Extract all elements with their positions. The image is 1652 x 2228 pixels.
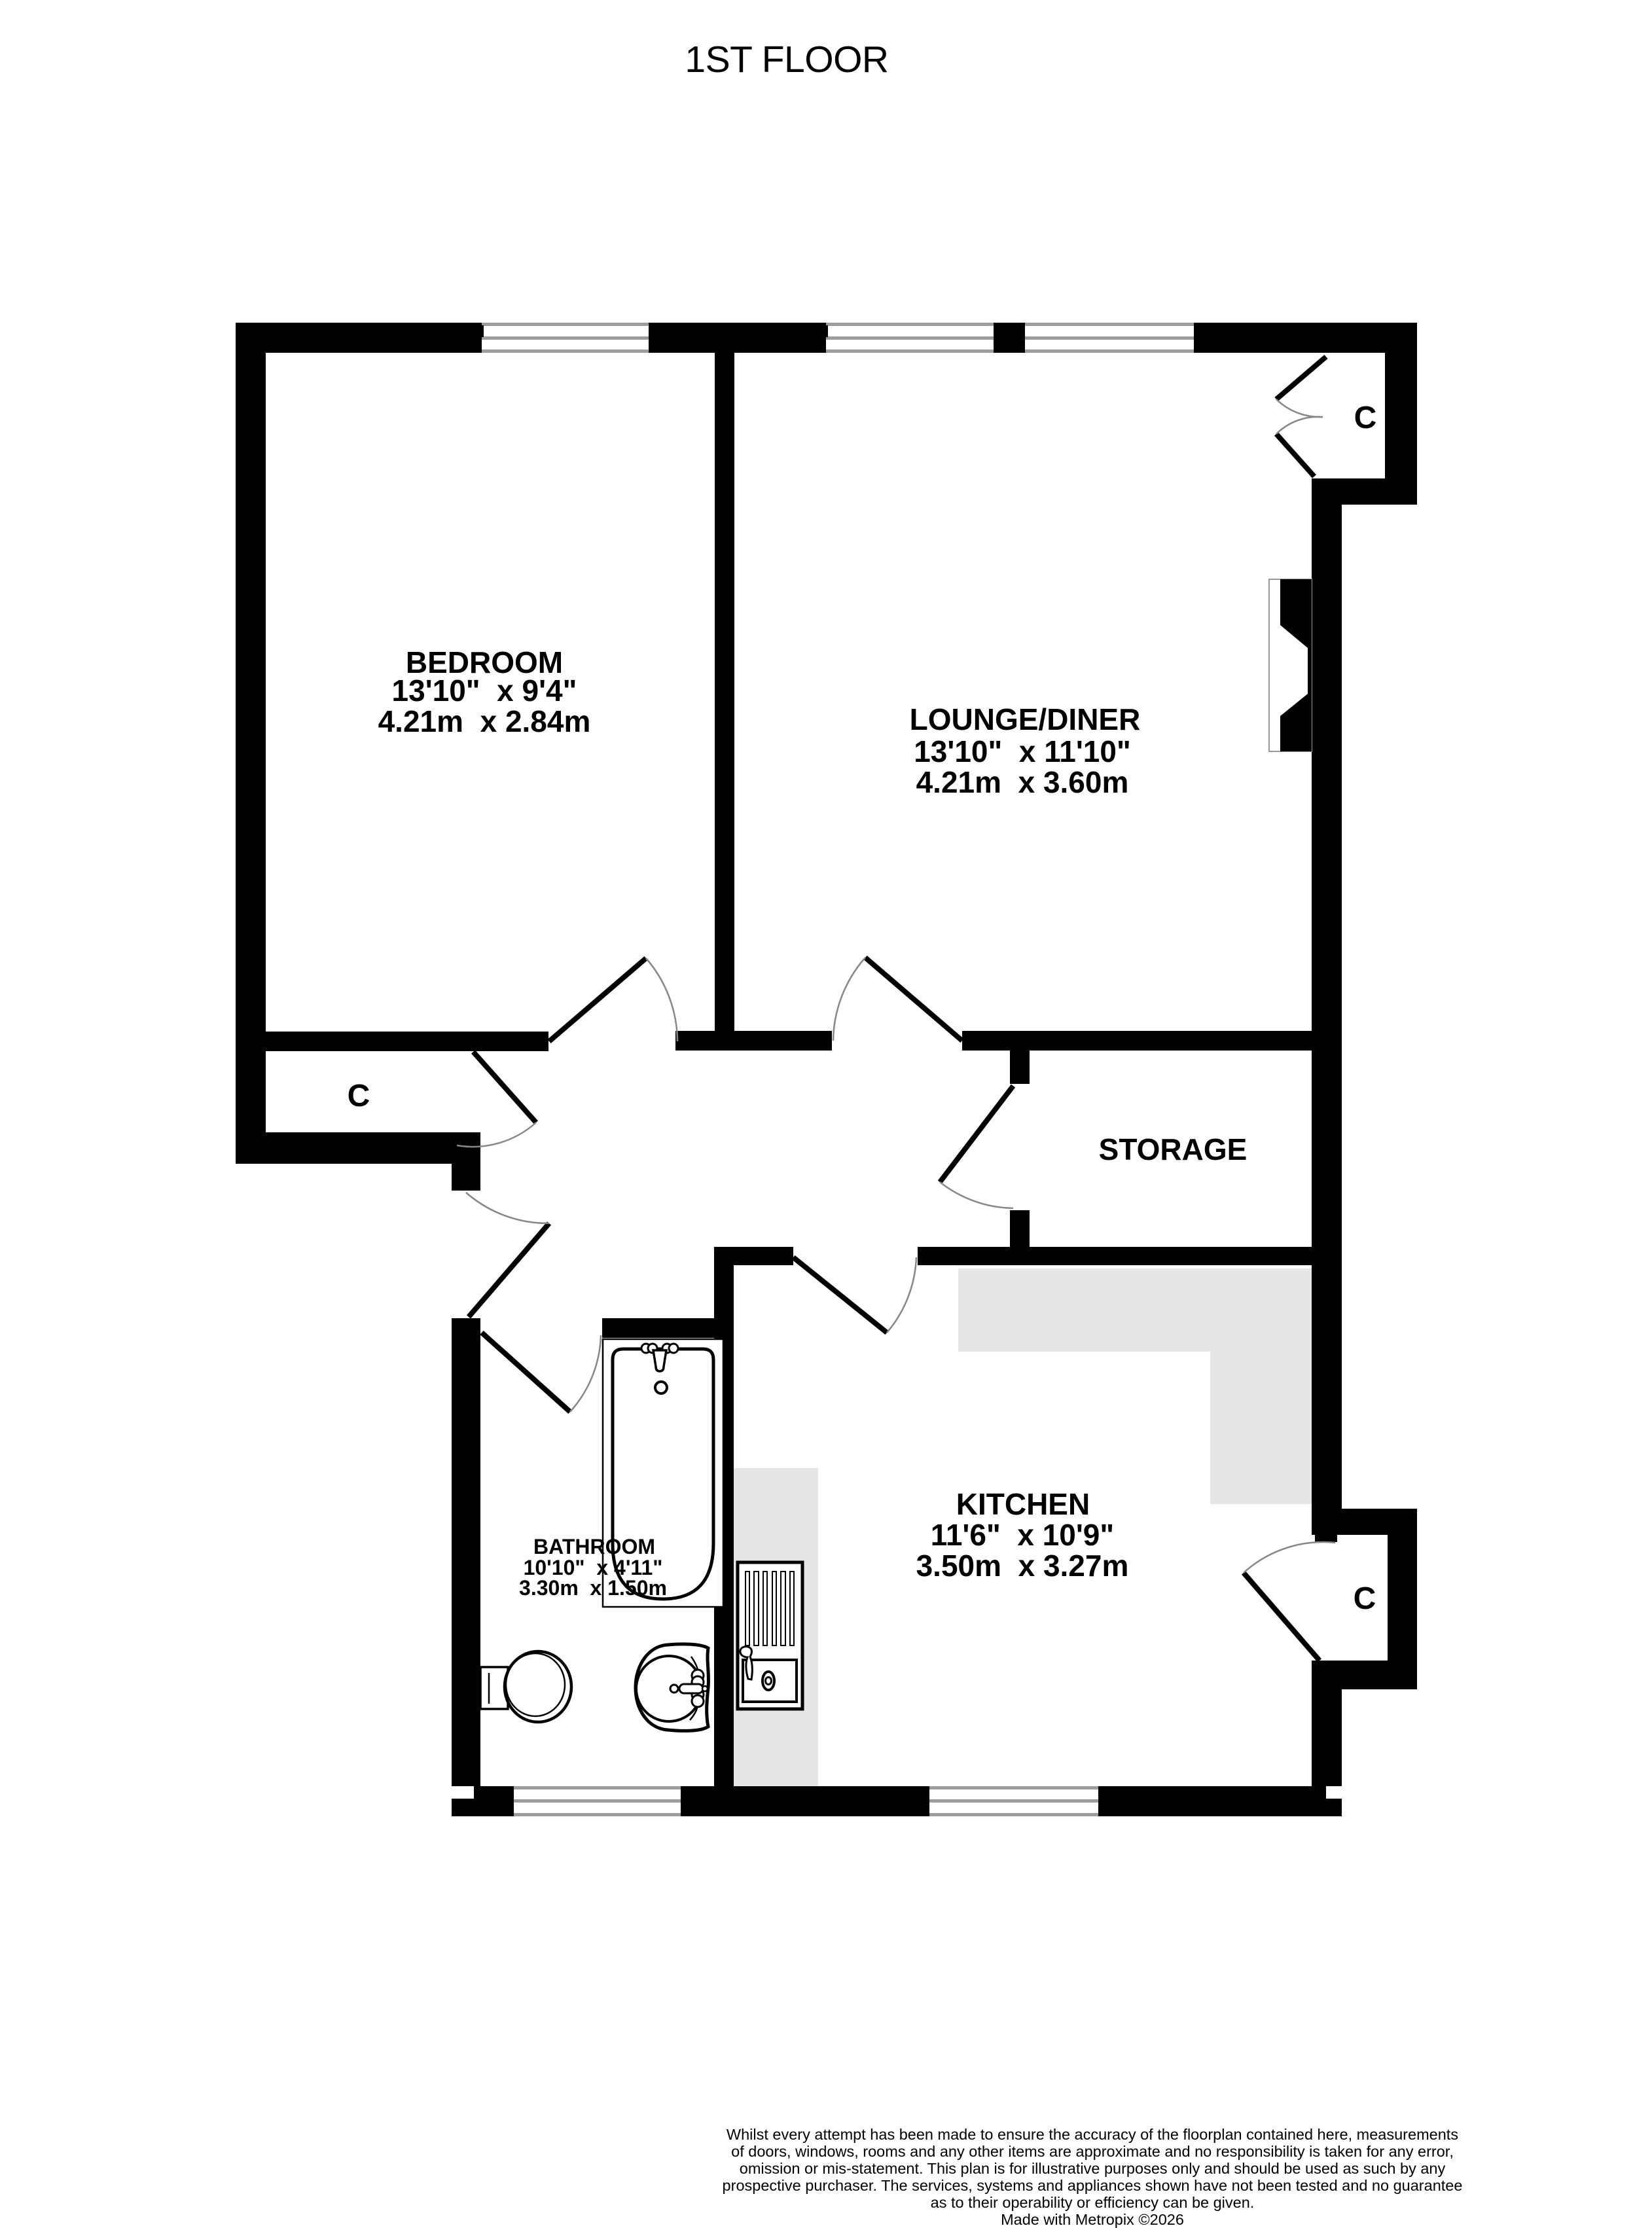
svg-text:of doors, windows, rooms and a: of doors, windows, rooms and any other i… (731, 2143, 1454, 2160)
svg-text:3.30m x 1.50m: 3.30m x 1.50m (519, 1576, 667, 1600)
svg-text:BATHROOM: BATHROOM (533, 1535, 655, 1558)
svg-text:STORAGE: STORAGE (1099, 1132, 1248, 1166)
svg-text:13'10" x 11'10": 13'10" x 11'10" (914, 734, 1131, 768)
svg-text:3.50m x 3.27m: 3.50m x 3.27m (916, 1549, 1129, 1583)
svg-text:13'10" x 9'4": 13'10" x 9'4" (392, 674, 577, 708)
svg-text:C: C (348, 1079, 370, 1113)
svg-text:4.21m x 3.60m: 4.21m x 3.60m (916, 765, 1129, 799)
svg-text:11'6" x 10'9": 11'6" x 10'9" (931, 1518, 1114, 1552)
svg-text:Whilst every attempt has been: Whilst every attempt has been made to en… (727, 2126, 1458, 2143)
svg-text:prospective purchaser. The ser: prospective purchaser. The services, sys… (723, 2177, 1463, 2194)
svg-text:Made with Metropix ©2026: Made with Metropix ©2026 (1001, 2211, 1184, 2228)
svg-text:KITCHEN: KITCHEN (956, 1487, 1090, 1521)
svg-text:as to their operability or eff: as to their operability or efficiency ca… (931, 2194, 1255, 2211)
svg-text:4.21m x 2.84m: 4.21m x 2.84m (378, 704, 591, 738)
svg-text:omission or mis-statement. Thi: omission or mis-statement. This plan is … (740, 2160, 1446, 2177)
svg-text:1ST FLOOR: 1ST FLOOR (685, 39, 888, 81)
svg-text:C: C (1354, 401, 1377, 435)
svg-text:LOUNGE/DINER: LOUNGE/DINER (910, 702, 1141, 736)
svg-text:C: C (1354, 1581, 1376, 1616)
